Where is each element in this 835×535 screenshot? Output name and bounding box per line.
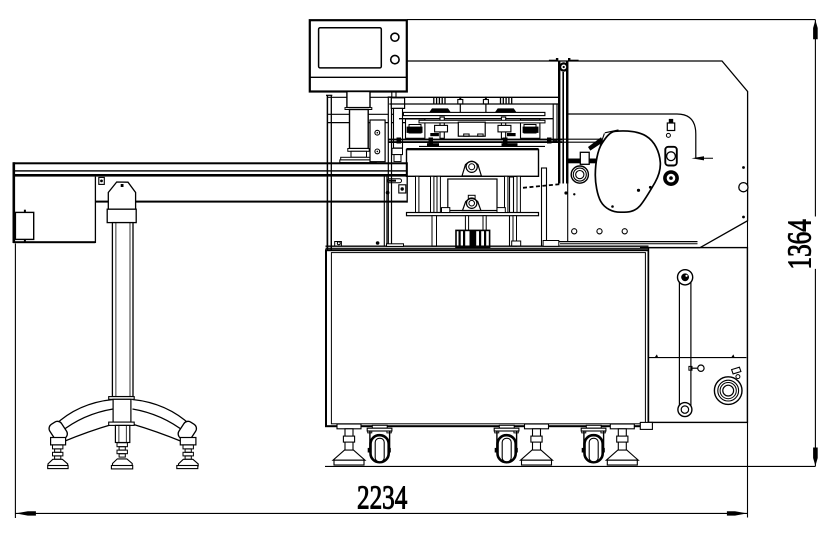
svg-text:2234: 2234 bbox=[357, 479, 407, 517]
svg-text:1364: 1364 bbox=[781, 219, 819, 269]
